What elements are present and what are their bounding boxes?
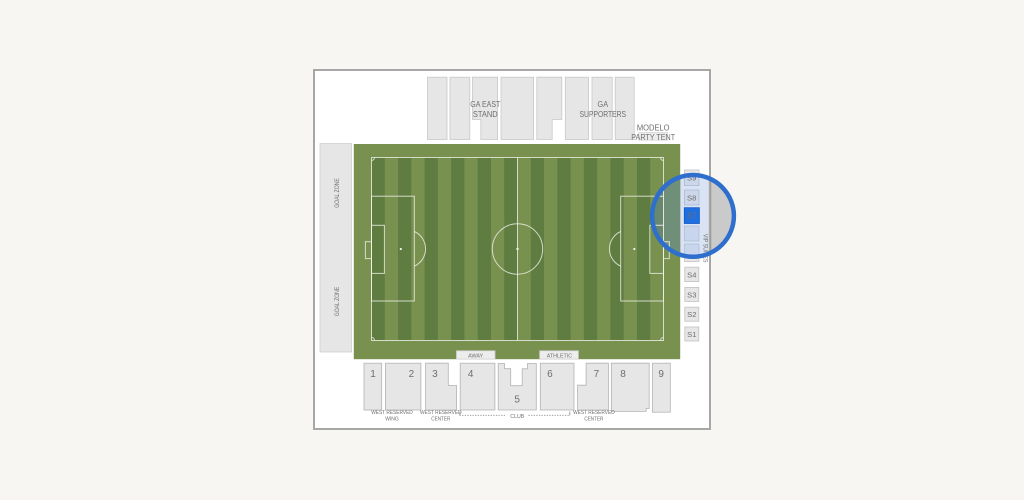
svg-text:GOAL ZONE: GOAL ZONE — [334, 178, 341, 208]
svg-text:WEST RESERVED: WEST RESERVED — [420, 410, 462, 416]
svg-text:6: 6 — [547, 369, 553, 380]
svg-text:SUPPORTERS: SUPPORTERS — [580, 109, 627, 119]
svg-text:GA: GA — [598, 99, 609, 109]
svg-text:PARTY TENT: PARTY TENT — [631, 133, 675, 142]
svg-text:CENTER: CENTER — [431, 416, 450, 422]
svg-text:GA EAST: GA EAST — [470, 99, 500, 109]
svg-text:CLUB: CLUB — [510, 414, 524, 420]
svg-text:3: 3 — [432, 369, 438, 380]
svg-text:WING: WING — [385, 416, 399, 422]
svg-text:STAND: STAND — [473, 109, 498, 119]
svg-text:S7: S7 — [687, 212, 697, 221]
svg-text:WEST RESERVED: WEST RESERVED — [573, 410, 615, 416]
svg-text:1: 1 — [370, 369, 376, 380]
svg-text:CENTER: CENTER — [584, 416, 603, 422]
svg-text:MODELO: MODELO — [637, 123, 670, 132]
svg-text:S2: S2 — [687, 310, 696, 319]
svg-text:AWAY: AWAY — [468, 353, 483, 359]
svg-text:4: 4 — [468, 369, 474, 380]
svg-text:S3: S3 — [687, 290, 696, 299]
svg-text:7: 7 — [594, 369, 600, 380]
svg-text:8: 8 — [620, 369, 626, 380]
svg-text:S1: S1 — [687, 330, 696, 339]
svg-text:5: 5 — [514, 394, 520, 405]
svg-text:9: 9 — [658, 369, 664, 380]
svg-text:GOAL ZONE: GOAL ZONE — [334, 287, 341, 317]
svg-text:2: 2 — [409, 369, 415, 380]
svg-text:WEST RESERVED: WEST RESERVED — [371, 410, 413, 416]
svg-text:S4: S4 — [687, 270, 696, 279]
svg-text:S8: S8 — [687, 193, 696, 202]
svg-text:ATHLETIC: ATHLETIC — [547, 353, 572, 359]
